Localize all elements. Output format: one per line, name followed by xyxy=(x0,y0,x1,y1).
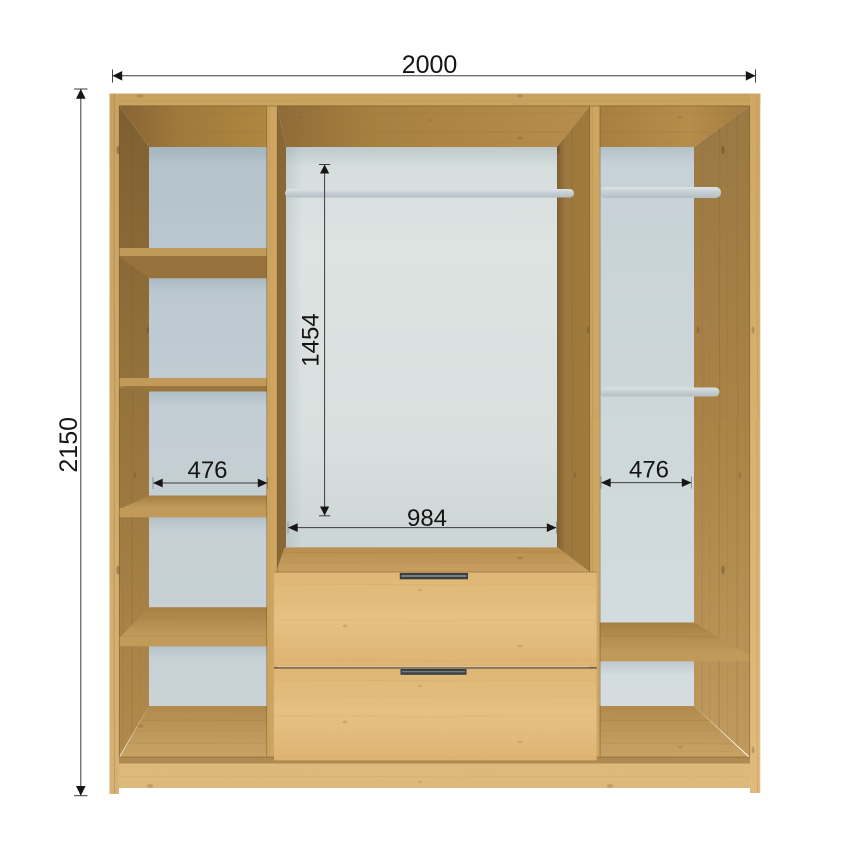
svg-text:2150: 2150 xyxy=(55,417,83,473)
svg-text:476: 476 xyxy=(187,457,227,484)
svg-text:1454: 1454 xyxy=(298,313,325,366)
svg-text:476: 476 xyxy=(629,457,669,484)
svg-text:2000: 2000 xyxy=(402,51,458,79)
svg-text:984: 984 xyxy=(407,505,447,532)
